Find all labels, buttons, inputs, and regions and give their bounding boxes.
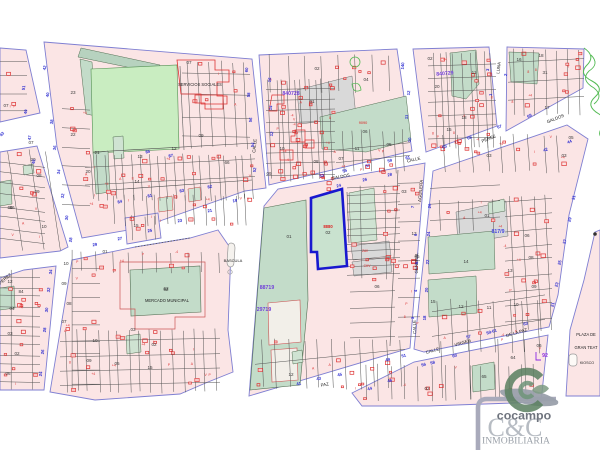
svg-text:14: 14	[134, 179, 140, 184]
svg-text:CHV: CHV	[364, 264, 372, 268]
svg-text:-4: -4	[291, 114, 294, 118]
svg-text:+4: +4	[206, 197, 210, 201]
svg-text:SERVICIOS SOCIALES: SERVICIOS SOCIALES	[178, 82, 222, 87]
svg-text:I: I	[128, 199, 129, 203]
svg-text:GRAN TEAT: GRAN TEAT	[574, 345, 598, 350]
svg-text:16: 16	[516, 57, 522, 62]
svg-text:03: 03	[486, 153, 492, 158]
svg-text:10: 10	[279, 146, 285, 151]
svg-text:06: 06	[362, 129, 368, 134]
svg-text:817/9: 817/9	[492, 229, 505, 235]
svg-text:02: 02	[314, 66, 320, 71]
svg-text:+4: +4	[89, 202, 93, 206]
svg-text:+4: +4	[326, 141, 330, 145]
svg-text:20: 20	[424, 287, 429, 293]
svg-text:08: 08	[66, 301, 72, 306]
svg-text:I: I	[94, 194, 95, 198]
svg-text:I: I	[160, 219, 161, 223]
svg-text:140: 140	[400, 62, 406, 70]
svg-text:+4: +4	[120, 259, 124, 263]
svg-text:06: 06	[5, 371, 11, 376]
svg-text:06: 06	[524, 233, 530, 238]
svg-text:12: 12	[288, 372, 294, 377]
svg-text:13: 13	[507, 268, 513, 273]
svg-text:18: 18	[461, 115, 467, 120]
svg-text:24: 24	[426, 231, 431, 237]
svg-text:07: 07	[3, 103, 9, 108]
svg-text:18: 18	[538, 53, 544, 58]
svg-text:26: 26	[427, 203, 432, 209]
svg-text:9090: 9090	[359, 121, 367, 125]
svg-text:02: 02	[326, 230, 331, 235]
svg-text:22: 22	[425, 259, 430, 265]
svg-text:INMOBILIARIA: INMOBILIARIA	[482, 437, 550, 447]
svg-text:08: 08	[528, 255, 534, 260]
svg-text:04: 04	[363, 77, 369, 82]
svg-text:8: 8	[329, 116, 331, 120]
svg-text:8: 8	[453, 131, 455, 135]
svg-text:14: 14	[463, 259, 469, 264]
svg-text:15: 15	[430, 299, 436, 304]
svg-text:8880: 8880	[323, 224, 333, 229]
svg-text:8: 8	[404, 315, 406, 319]
svg-text:09: 09	[531, 284, 537, 289]
svg-text:07: 07	[61, 319, 67, 324]
svg-text:02: 02	[14, 351, 20, 356]
svg-text:-4: -4	[476, 138, 479, 142]
svg-text:02: 02	[424, 386, 430, 391]
svg-text:13: 13	[137, 154, 143, 159]
svg-text:-4: -4	[175, 250, 178, 254]
svg-text:20: 20	[85, 169, 91, 174]
svg-text:12: 12	[458, 304, 464, 309]
svg-text:15: 15	[446, 127, 452, 132]
svg-text:11: 11	[355, 146, 360, 151]
svg-text:-4: -4	[503, 244, 506, 248]
svg-text:cocampo: cocampo	[497, 409, 552, 423]
svg-text:29719: 29719	[257, 307, 272, 313]
svg-text:01: 01	[286, 234, 292, 239]
svg-text:I: I	[151, 215, 152, 219]
svg-text:15: 15	[133, 223, 139, 228]
svg-text:65: 65	[481, 374, 487, 379]
svg-text:8: 8	[527, 70, 529, 74]
svg-text:12: 12	[7, 279, 13, 284]
svg-text:I: I	[411, 290, 412, 294]
svg-text:15: 15	[147, 365, 153, 370]
svg-text:06: 06	[536, 343, 542, 348]
svg-text:05: 05	[386, 142, 392, 147]
svg-text:I: I	[10, 105, 11, 109]
svg-text:03: 03	[130, 327, 136, 332]
svg-text:66: 66	[7, 205, 13, 210]
svg-text:07: 07	[338, 156, 344, 161]
svg-text:10: 10	[41, 224, 47, 229]
svg-text:+4: +4	[91, 372, 95, 376]
svg-text:10: 10	[513, 302, 519, 307]
svg-text:22: 22	[70, 132, 76, 137]
svg-text:840728: 840728	[282, 91, 299, 97]
svg-text:88719: 88719	[260, 285, 275, 291]
svg-text:10: 10	[92, 338, 98, 343]
svg-text:I: I	[193, 347, 194, 351]
svg-text:+4: +4	[478, 211, 482, 215]
svg-text:84: 84	[18, 289, 24, 294]
svg-text:01: 01	[309, 99, 315, 104]
svg-text:09: 09	[61, 281, 67, 286]
svg-text:CALLE: CALLE	[412, 320, 417, 334]
svg-text:I: I	[534, 150, 535, 154]
svg-text:I: I	[355, 386, 356, 390]
svg-text:+4: +4	[517, 258, 521, 262]
svg-text:I: I	[481, 201, 482, 205]
svg-text:06: 06	[374, 284, 380, 289]
svg-text:09: 09	[34, 189, 40, 194]
svg-text:12: 12	[171, 146, 177, 151]
svg-text:08: 08	[36, 173, 42, 178]
svg-text:8: 8	[69, 360, 71, 364]
svg-text:09: 09	[266, 171, 272, 176]
svg-text:08: 08	[313, 159, 319, 164]
svg-text:01: 01	[484, 213, 490, 218]
svg-text:+4: +4	[499, 142, 503, 146]
svg-text:62: 62	[164, 287, 169, 292]
svg-text:+4: +4	[141, 343, 145, 347]
svg-text:+4: +4	[528, 94, 532, 98]
svg-text:-4: -4	[293, 123, 296, 127]
svg-text:BASCULA: BASCULA	[224, 258, 243, 263]
svg-text:31: 31	[542, 70, 548, 75]
svg-text:I: I	[94, 166, 95, 170]
svg-text:+4: +4	[105, 182, 109, 186]
svg-text:05: 05	[114, 361, 120, 366]
svg-text:ZAV: ZAV	[362, 249, 369, 253]
svg-text:11: 11	[472, 70, 477, 75]
svg-text:64: 64	[510, 355, 516, 360]
svg-text:09: 09	[198, 133, 204, 138]
svg-text:8: 8	[535, 68, 537, 72]
svg-text:21: 21	[94, 150, 100, 155]
svg-text:PLAZA DE: PLAZA DE	[576, 332, 596, 337]
svg-text:+4: +4	[83, 111, 87, 115]
svg-text:8: 8	[511, 100, 513, 104]
svg-text:I: I	[471, 77, 472, 81]
svg-text:92: 92	[542, 353, 548, 359]
svg-text:01: 01	[102, 249, 108, 254]
svg-text:10: 10	[63, 261, 69, 266]
svg-text:-4: -4	[501, 333, 504, 337]
svg-text:8: 8	[432, 132, 434, 136]
svg-text:-4: -4	[403, 383, 406, 387]
svg-text:18: 18	[422, 315, 427, 321]
svg-text:03: 03	[561, 153, 567, 158]
svg-text:+4: +4	[66, 324, 70, 328]
svg-text:I: I	[218, 72, 219, 76]
svg-text:03: 03	[7, 331, 13, 336]
svg-text:02: 02	[427, 56, 433, 61]
svg-text:MERCADO MUNICIPAL: MERCADO MUNICIPAL	[145, 298, 190, 303]
svg-text:I: I	[39, 235, 40, 239]
svg-text:66: 66	[224, 160, 230, 165]
svg-text:02: 02	[151, 342, 157, 347]
svg-text:I: I	[15, 382, 16, 386]
svg-text:20: 20	[434, 84, 440, 89]
svg-text:11: 11	[487, 305, 492, 310]
svg-text:03: 03	[401, 189, 407, 194]
svg-text:23: 23	[70, 90, 76, 95]
svg-text:17: 17	[544, 105, 550, 110]
svg-text:KIOSCO: KIOSCO	[580, 361, 594, 365]
svg-text:07: 07	[186, 60, 192, 65]
svg-text:8: 8	[132, 177, 134, 181]
svg-text:09: 09	[86, 358, 92, 363]
svg-text:04: 04	[9, 306, 15, 311]
